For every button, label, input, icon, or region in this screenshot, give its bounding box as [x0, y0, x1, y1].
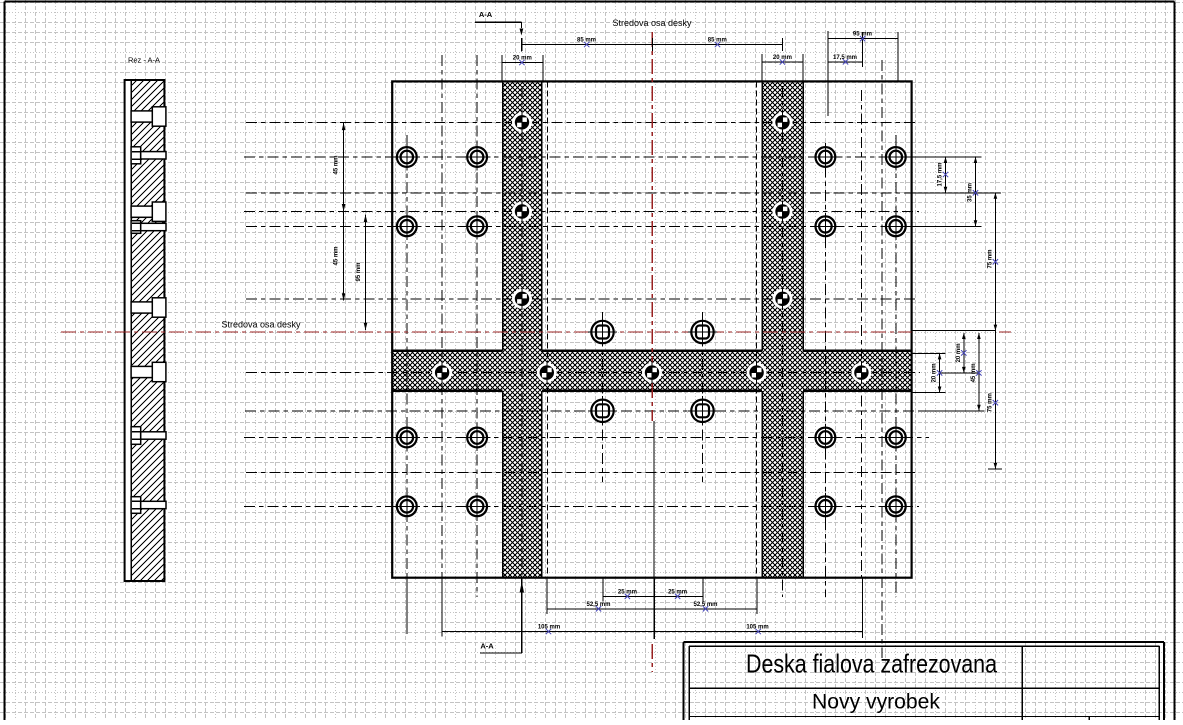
- svg-text:25 mm: 25 mm: [668, 589, 687, 595]
- svg-text:Stredova osa desky: Stredova osa desky: [221, 320, 301, 330]
- svg-text:45 mm: 45 mm: [971, 363, 977, 382]
- svg-text:75 mm: 75 mm: [987, 393, 993, 412]
- svg-text:20 mm: 20 mm: [956, 343, 962, 362]
- svg-text:95 mm: 95 mm: [356, 262, 362, 281]
- svg-text:52,5 mm: 52,5 mm: [693, 602, 717, 608]
- svg-text:85 mm: 85 mm: [577, 38, 596, 44]
- svg-text:Stredova osa desky: Stredova osa desky: [612, 18, 692, 28]
- svg-text:20 mm: 20 mm: [773, 55, 792, 61]
- svg-text:85 mm: 85 mm: [708, 38, 727, 44]
- svg-text:A-A: A-A: [480, 641, 494, 650]
- svg-text:20 mm: 20 mm: [932, 363, 938, 382]
- svg-text:Novy vyrobek: Novy vyrobek: [812, 691, 940, 714]
- svg-text:25 mm: 25 mm: [618, 589, 637, 595]
- svg-text:45 mm: 45 mm: [334, 246, 340, 265]
- svg-text:75 mm: 75 mm: [987, 249, 993, 268]
- svg-text:17,5 mm: 17,5 mm: [833, 55, 857, 61]
- svg-text:Rez - A-A: Rez - A-A: [128, 56, 160, 65]
- svg-text:95 mm: 95 mm: [853, 32, 872, 38]
- svg-text:20 mm: 20 mm: [513, 56, 532, 62]
- svg-text:45 mm: 45 mm: [334, 155, 340, 174]
- svg-text:A-A: A-A: [479, 10, 493, 19]
- svg-text:105 mm: 105 mm: [746, 625, 768, 631]
- svg-text:105 mm: 105 mm: [538, 625, 560, 631]
- svg-text:52,5 mm: 52,5 mm: [586, 602, 610, 608]
- svg-text:35 mm: 35 mm: [968, 183, 974, 202]
- svg-text:Deska fialova zafrezovana: Deska fialova zafrezovana: [746, 649, 997, 679]
- svg-text:17,5 mm: 17,5 mm: [938, 162, 944, 186]
